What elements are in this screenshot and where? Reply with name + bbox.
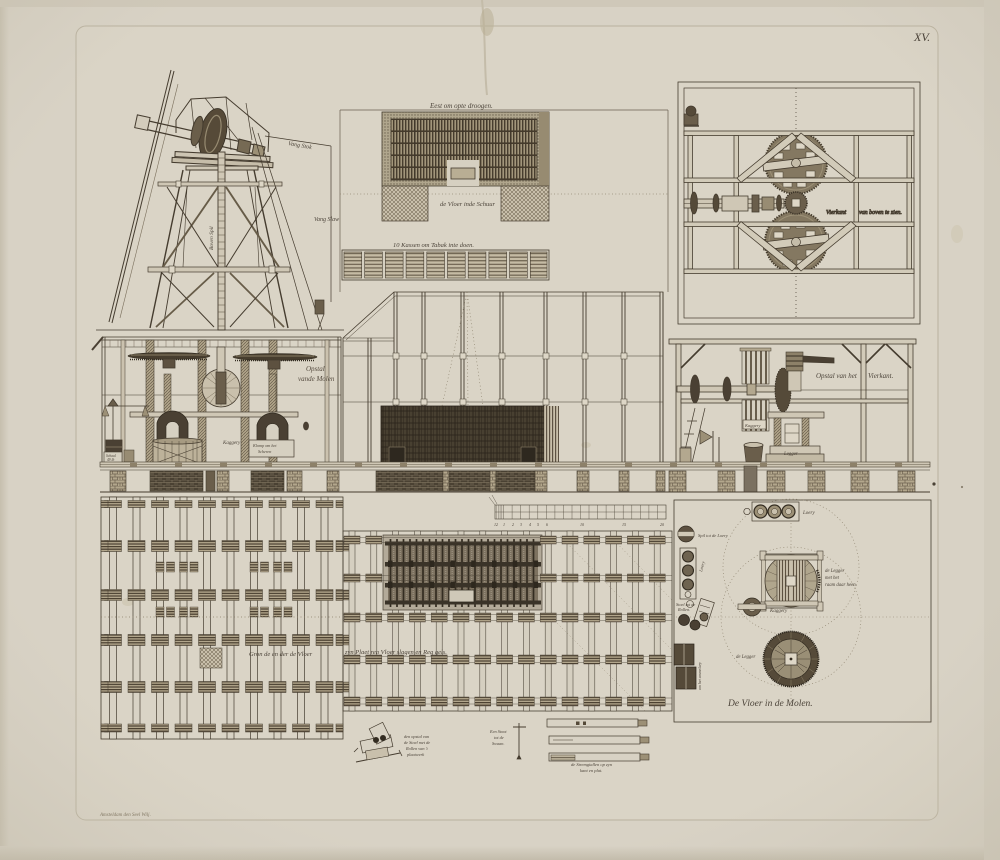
svg-text:De Vloer in de Molen.: De Vloer in de Molen. [727, 699, 813, 709]
svg-text:2: 2 [512, 522, 514, 527]
svg-text:12: 12 [494, 522, 498, 527]
svg-text:1: 1 [503, 522, 505, 527]
svg-text:de Legger: de Legger [825, 569, 844, 574]
svg-text:Legger: Legger [783, 452, 798, 457]
svg-text:Rollen.: Rollen. [677, 607, 690, 612]
svg-text:van boven te zien.: van boven te zien. [859, 210, 902, 216]
svg-text:10: 10 [580, 522, 584, 527]
svg-text:Amsteldam den Seel Wilj.: Amsteldam den Seel Wilj. [99, 813, 151, 818]
svg-text:Boven Spil: Boven Spil [209, 226, 215, 250]
svg-text:plaatwerk: plaatwerk [406, 752, 424, 757]
svg-text:den opstal van: den opstal van [404, 734, 429, 739]
svg-text:Klomp om het: Klomp om het [252, 443, 277, 448]
svg-text:49 lb: 49 lb [107, 458, 114, 462]
svg-text:Swaan.: Swaan. [492, 741, 505, 746]
svg-text:tot de: tot de [494, 735, 504, 740]
svg-text:Spil tot de Loery: Spil tot de Loery [698, 533, 728, 538]
svg-text:de Stoel met de: de Stoel met de [404, 740, 430, 745]
svg-text:4: 4 [529, 522, 531, 527]
svg-text:Vang Slaw: Vang Slaw [314, 217, 339, 223]
svg-text:Opstal: Opstal [306, 365, 325, 373]
svg-text:20: 20 [660, 522, 664, 527]
svg-text:5: 5 [537, 522, 539, 527]
svg-text:Eest om opte droogen.: Eest om opte droogen. [429, 102, 493, 110]
svg-text:Kaggery: Kaggery [744, 423, 761, 428]
svg-text:vande Molen: vande Molen [298, 375, 335, 383]
svg-text:kant en plat.: kant en plat. [580, 768, 602, 773]
svg-text:Scheren: Scheren [258, 449, 271, 454]
svg-text:10 Kassen om Tabak inte doen.: 10 Kassen om Tabak inte doen. [393, 242, 474, 249]
svg-text:Een Stoot: Een Stoot [489, 729, 507, 734]
svg-text:met het: met het [825, 576, 840, 581]
svg-text:de Legger: de Legger [736, 655, 755, 660]
svg-text:raam daar heen.: raam daar heen. [825, 583, 857, 588]
svg-text:Vierkant: Vierkant [826, 210, 847, 216]
svg-text:Kaggery: Kaggery [222, 441, 241, 446]
svg-text:Vierkant.: Vierkant. [868, 372, 894, 380]
svg-text:de Vloer inde Schuur: de Vloer inde Schuur [440, 201, 496, 208]
svg-text:Gron de en der de Vloer: Gron de en der de Vloer [249, 651, 313, 658]
svg-text:zyn Plaet ren Vloer slagen en: zyn Plaet ren Vloer slagen en Reg gels. [344, 649, 447, 656]
svg-text:Opstal van het: Opstal van het [816, 372, 858, 380]
svg-text:Kaggery: Kaggery [769, 609, 788, 614]
svg-text:om het ammelary: om het ammelary [697, 662, 702, 690]
svg-text:de Stremgiallen op zyn: de Stremgiallen op zyn [571, 762, 613, 767]
svg-text:6: 6 [546, 522, 548, 527]
svg-text:XV.: XV. [913, 30, 930, 44]
svg-text:Loery: Loery [802, 511, 815, 516]
svg-text:3: 3 [520, 522, 522, 527]
svg-text:Rollen van 't: Rollen van 't [405, 746, 428, 751]
svg-text:15: 15 [622, 522, 626, 527]
